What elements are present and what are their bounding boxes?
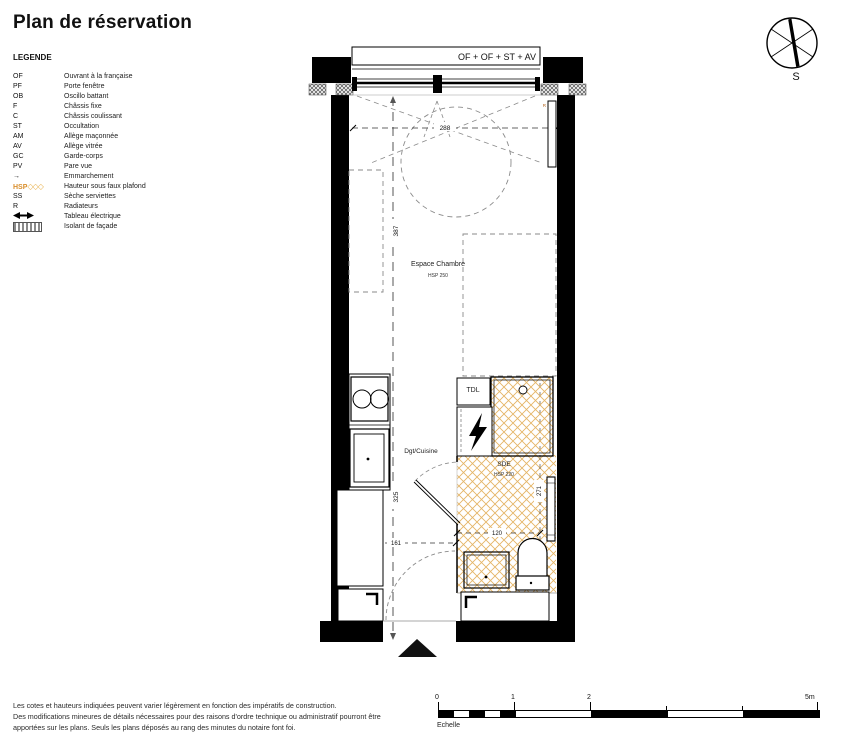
legend-row: PVPare vue xyxy=(13,162,243,172)
insulation-block xyxy=(569,84,586,95)
shower-drain xyxy=(519,386,527,394)
cooktop xyxy=(351,377,388,421)
cuisine-label: Dgt/Cuisine xyxy=(404,448,438,455)
chambre-label: Espace Chambre xyxy=(411,261,465,268)
sde-door-leaf xyxy=(414,480,460,525)
legend-symbol: AV xyxy=(13,142,64,152)
footer-line: apportées sur les plans. Seuls les plans… xyxy=(13,723,443,734)
facade-insulation-icon xyxy=(13,222,42,232)
legend-label: Sèche serviettes xyxy=(64,192,116,202)
dim-sde-width: 120 xyxy=(492,531,503,537)
dim-sde-length: 271 xyxy=(537,485,543,496)
legend-label: Occultation xyxy=(64,122,99,132)
legend-symbol: ST xyxy=(13,122,64,132)
toilet-tank xyxy=(516,576,549,590)
sde-label: SDE xyxy=(497,461,511,468)
window-mullion xyxy=(352,77,357,91)
wall xyxy=(312,57,351,83)
step-arrow-icon: → xyxy=(13,172,64,182)
legend-row: AMAllège maçonnée xyxy=(13,132,243,142)
kitchen-sink xyxy=(350,429,389,487)
window-mullion xyxy=(433,75,442,93)
scale-tick xyxy=(817,702,818,710)
compass: S xyxy=(762,12,824,84)
closet xyxy=(337,490,383,586)
legend-label: Pare vue xyxy=(64,162,92,172)
legend-label: Hauteur sous faux plafond xyxy=(64,182,146,192)
sde-door-arc xyxy=(415,462,459,481)
sde-hsp-label: HSP 220 xyxy=(494,472,514,478)
legend-label: Châssis coulissant xyxy=(64,112,122,122)
legend-row: PFPorte fenêtre xyxy=(13,82,243,92)
dim-room-width: 288 xyxy=(440,125,451,132)
legend-label: Oscillo battant xyxy=(64,92,108,102)
legend-symbol: SS xyxy=(13,192,64,202)
legend-row: Tableau électrique xyxy=(13,212,243,222)
scale-tick xyxy=(590,702,591,710)
wall-bottom-left xyxy=(320,621,383,642)
south-label: S xyxy=(792,71,799,83)
scale-number: 1 xyxy=(511,694,515,701)
legend-label: Emmarchement xyxy=(64,172,113,182)
scale-number: 2 xyxy=(587,694,591,701)
toilet-bowl xyxy=(518,539,547,578)
radiator-label: R xyxy=(543,103,547,108)
footer-line: Des modifications mineures de détails né… xyxy=(13,712,443,723)
hsp-diamonds-icon: ◇◇◇ xyxy=(27,182,42,191)
legend-row: Isolant de façade xyxy=(13,222,243,232)
legend-row: CChâssis coulissant xyxy=(13,112,243,122)
scale-number: 0 xyxy=(435,694,439,701)
window-assembly: OF + OF + ST + AV xyxy=(349,47,557,95)
legend-label: Porte fenêtre xyxy=(64,82,104,92)
scale-bar-body xyxy=(438,710,820,718)
legend-symbol: PF xyxy=(13,82,64,92)
entrance-arrow xyxy=(398,639,437,657)
legend-symbol: F xyxy=(13,102,64,112)
legend-symbol: C xyxy=(13,112,64,122)
wall-right xyxy=(557,95,575,642)
legend-label: Ouvrant à la française xyxy=(64,72,132,82)
bed-outline xyxy=(463,234,556,376)
window-swing-line xyxy=(424,101,437,137)
scale-number: 5m xyxy=(805,694,815,701)
legend-symbol: PV xyxy=(13,162,64,172)
legend-row: GCGarde-corps xyxy=(13,152,243,162)
toilet-mark xyxy=(530,582,532,584)
centerline-arrow xyxy=(390,633,396,640)
centerline-arrow xyxy=(390,96,396,103)
floor-plan: OF + OF + ST + AV xyxy=(300,40,600,665)
insulation-block xyxy=(541,84,558,95)
towel-radiator xyxy=(547,477,555,541)
page-title: Plan de réservation xyxy=(13,12,192,34)
wardrobe-outline xyxy=(349,170,383,292)
legend-label: Tableau électrique xyxy=(64,212,121,222)
legend-symbol-hsp: HSP xyxy=(13,184,27,191)
tdl-label: TDL xyxy=(466,387,479,394)
insulation-block xyxy=(336,84,353,95)
entry-door-arc xyxy=(386,551,455,620)
legend-label: Châssis fixe xyxy=(64,102,102,112)
legend-row: FChâssis fixe xyxy=(13,102,243,112)
kitchen xyxy=(349,374,390,490)
legend-label: Garde-corps xyxy=(64,152,103,162)
window-label: OF + OF + ST + AV xyxy=(458,52,536,62)
legend-row: →Emmarchement xyxy=(13,172,243,182)
reservation-plan-page: Plan de réservation LEGENDE OFOuvrant à … xyxy=(0,0,841,756)
legend: OFOuvrant à la française PFPorte fenêtre… xyxy=(13,72,243,232)
footer-disclaimer: Les cotes et hauteurs indiquées peuvent … xyxy=(13,701,443,733)
insulation-block xyxy=(309,84,326,95)
radiator xyxy=(548,101,556,167)
chambre-hsp-label: HSP 250 xyxy=(428,273,448,279)
dim-room-length: 387 xyxy=(393,225,400,236)
legend-label: Radiateurs xyxy=(64,202,98,212)
scale-tick xyxy=(514,702,515,710)
electric-panel-icon xyxy=(13,211,34,220)
footer-line: Les cotes et hauteurs indiquées peuvent … xyxy=(13,701,443,712)
legend-label: Allège maçonnée xyxy=(64,132,118,142)
legend-row: OBOscillo battant xyxy=(13,92,243,102)
compass-south-needle xyxy=(788,19,799,68)
legend-symbol: OB xyxy=(13,92,64,102)
dim-kitchen-length: 325 xyxy=(393,491,400,502)
legend-symbol: GC xyxy=(13,152,64,162)
window-mullion xyxy=(535,77,540,91)
legend-label: Allège vitrée xyxy=(64,142,103,152)
facade-insulation xyxy=(309,84,586,95)
legend-row: HSP◇◇◇Hauteur sous faux plafond xyxy=(13,182,243,192)
sink-drain xyxy=(367,458,370,461)
washbasin-drain xyxy=(485,576,488,579)
legend-label: Isolant de façade xyxy=(64,222,117,232)
legend-heading: LEGENDE xyxy=(13,53,52,62)
wall-bottom-right xyxy=(456,621,575,642)
legend-row: AVAllège vitrée xyxy=(13,142,243,152)
legend-row: SSSèche serviettes xyxy=(13,192,243,202)
legend-row: OFOuvrant à la française xyxy=(13,72,243,82)
legend-symbol: AM xyxy=(13,132,64,142)
legend-symbol: OF xyxy=(13,72,64,82)
legend-row: STOccultation xyxy=(13,122,243,132)
dim-entry-width: 161 xyxy=(391,541,402,547)
wall xyxy=(543,57,583,83)
